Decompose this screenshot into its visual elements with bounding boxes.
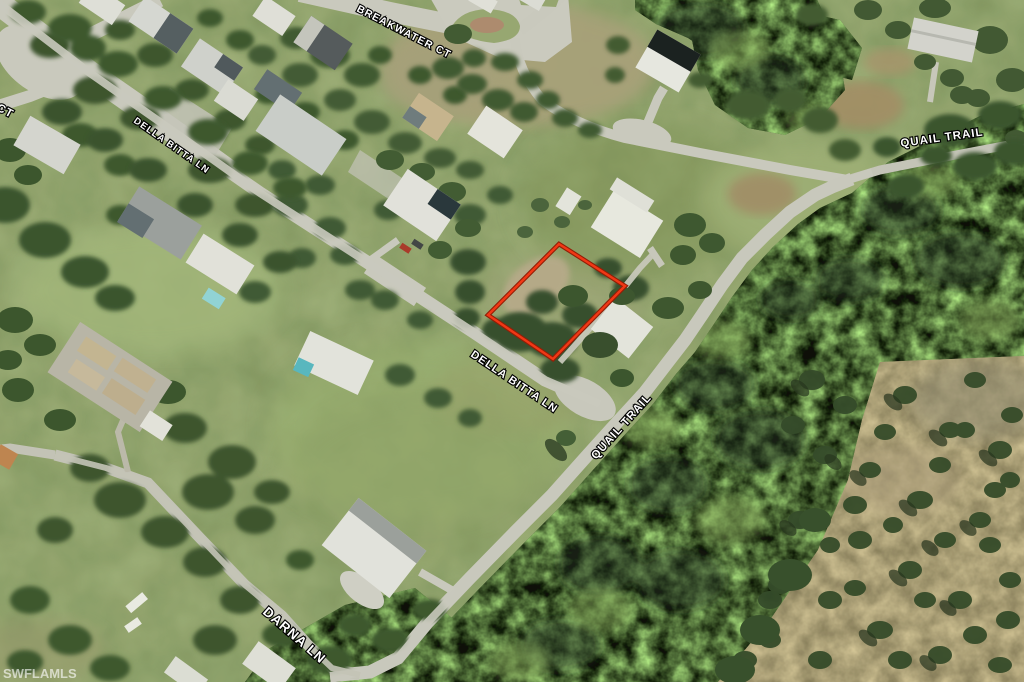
svg-text:SWFLAMLS: SWFLAMLS <box>3 666 77 681</box>
